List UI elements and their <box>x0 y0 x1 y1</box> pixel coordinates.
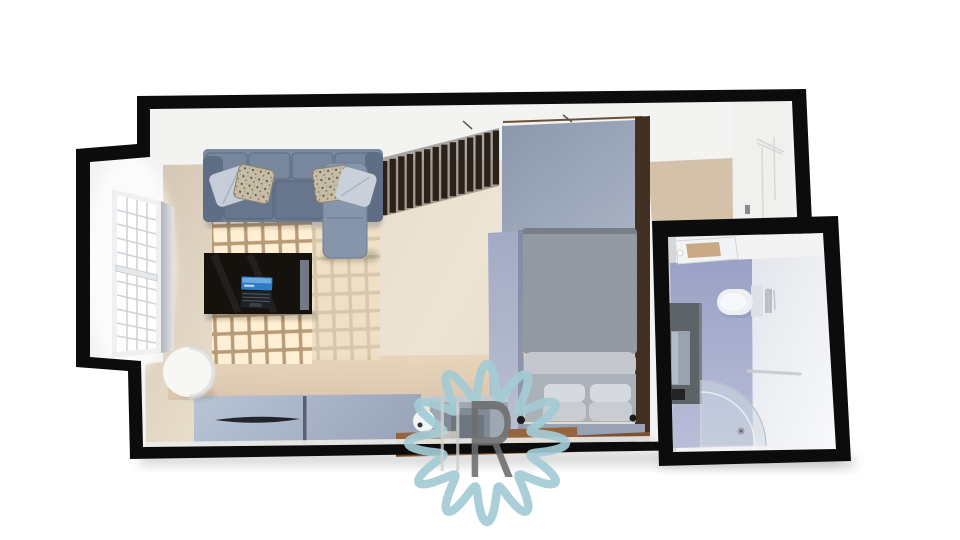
closet-handle <box>745 205 750 214</box>
vanity-accessory <box>672 389 685 400</box>
watermark-letter-h: H <box>438 381 462 493</box>
table-edge <box>300 260 309 310</box>
floor-dot-left <box>517 416 525 424</box>
throw-pillow-floral-1 <box>233 164 275 205</box>
laptop <box>240 276 272 308</box>
corridor-floor <box>648 158 733 224</box>
ceiling-light <box>675 237 738 264</box>
floor-dot-right <box>630 415 637 422</box>
bathroom <box>652 216 851 466</box>
built-in-closet <box>732 98 793 227</box>
wardrobe-frame-side <box>635 116 650 434</box>
bed-fold <box>524 352 636 376</box>
bathroom-floor-lit <box>752 255 836 449</box>
watermark-letter-r: R <box>466 378 516 501</box>
screenshot-root: H R <box>0 0 960 540</box>
floorplan-render: H R <box>0 0 960 540</box>
window-reveal <box>161 201 174 353</box>
vanity-with-mirror <box>667 303 702 404</box>
coffee-table <box>204 253 316 320</box>
window-bay <box>112 189 174 358</box>
sideboard-divider <box>303 396 307 444</box>
